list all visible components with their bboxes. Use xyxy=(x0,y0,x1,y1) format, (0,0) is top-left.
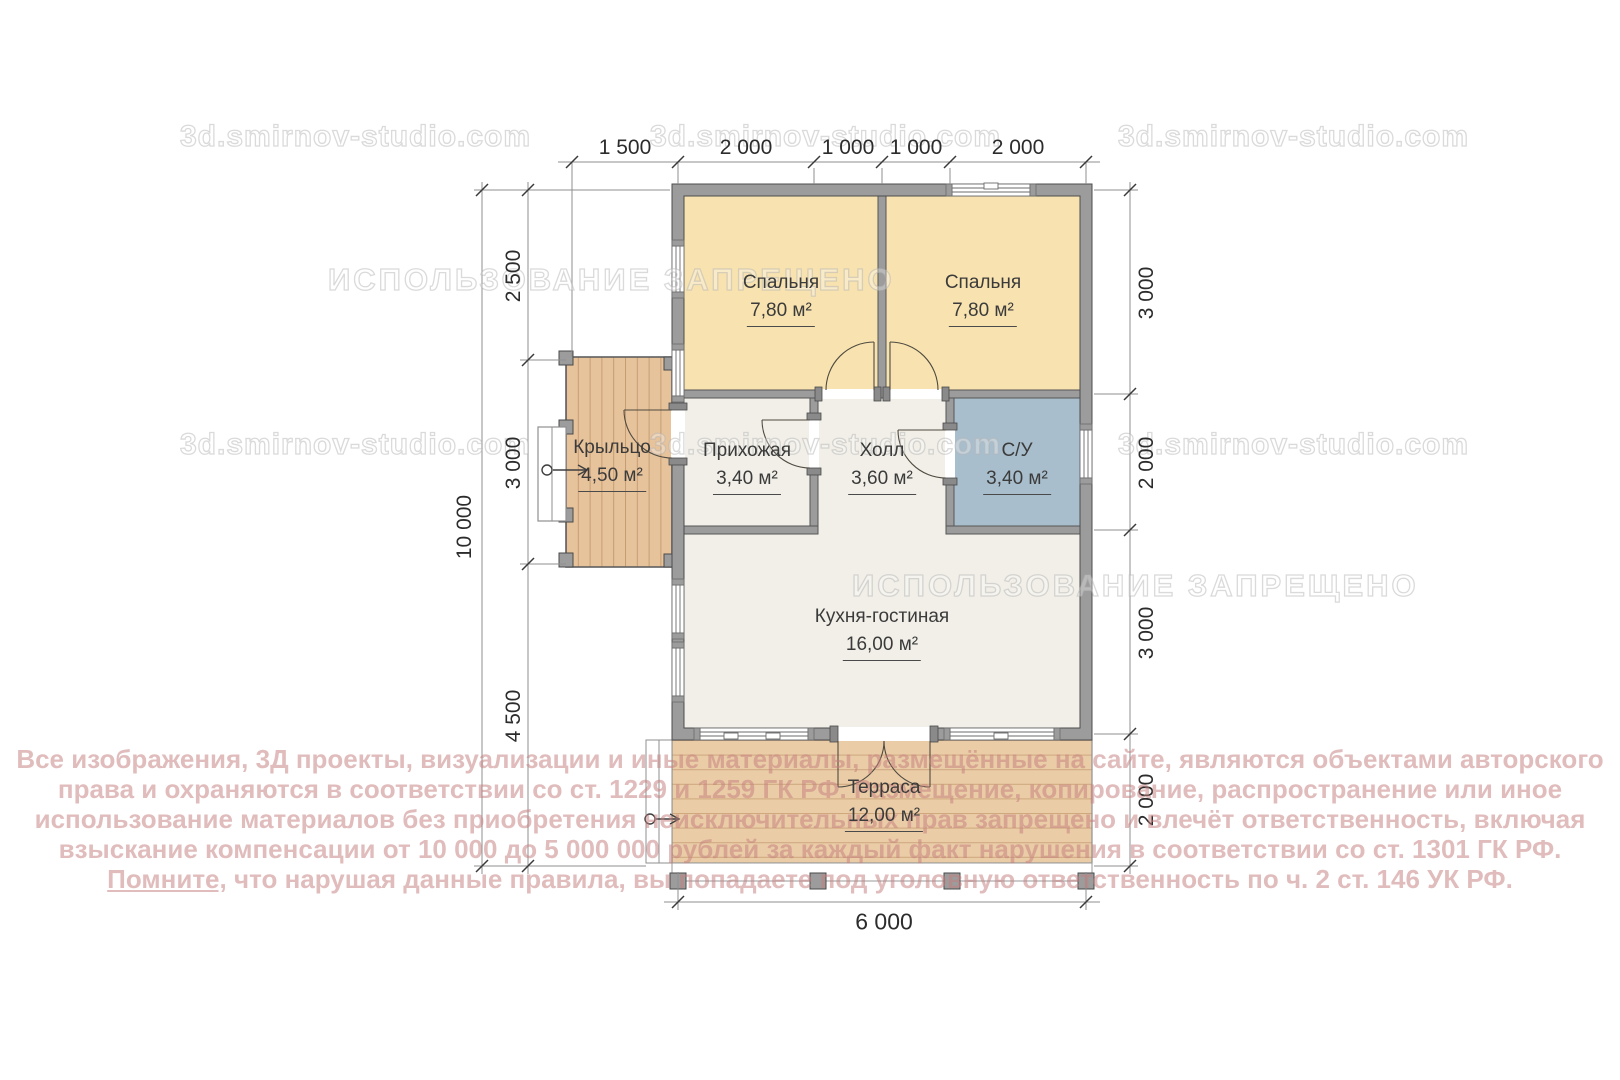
dim-right-3: 3 000 xyxy=(1135,607,1159,660)
copyright-line-rest: что нарушая данные правила, вы попадаете… xyxy=(227,864,1513,894)
hall-label: Холл 3,60 м² xyxy=(848,437,916,495)
room-area: 16,00 м² xyxy=(843,631,921,661)
dim-left-3: 4 500 xyxy=(502,690,526,743)
copyright-line: Помните, что нарушая данные правила, вы … xyxy=(10,864,1610,894)
bedroom-1-label: Спальня 7,80 м² xyxy=(743,269,819,327)
porch-entry-icon xyxy=(542,465,552,475)
floor-plan-page: 3d.smirnov-studio.com 3d.smirnov-studio.… xyxy=(0,0,1620,1080)
dim-top-4: 1 000 xyxy=(890,136,943,160)
watermark-site: 3d.smirnov-studio.com xyxy=(1118,120,1469,154)
room-area: 7,80 м² xyxy=(747,297,815,327)
room-name: Терраса xyxy=(845,774,923,802)
room-name: Спальня xyxy=(945,269,1021,297)
room-name: Крыльцо xyxy=(573,434,651,462)
hallway-label: Прихожая 3,40 м² xyxy=(703,437,791,495)
dim-left-total: 10 000 xyxy=(453,495,477,559)
watermark-site: 3d.smirnov-studio.com xyxy=(180,120,531,154)
room-area: 7,80 м² xyxy=(949,297,1017,327)
copyright-notice: Все изображения, 3Д проекты, визуализаци… xyxy=(10,744,1610,894)
room-area: 12,00 м² xyxy=(845,802,923,832)
dim-bottom: 6 000 xyxy=(855,909,913,936)
copyright-line: Все изображения, 3Д проекты, визуализаци… xyxy=(10,744,1610,774)
room-area: 3,60 м² xyxy=(848,465,916,495)
copyright-line: использование материалов без приобретени… xyxy=(10,804,1610,834)
room-name: Спальня xyxy=(743,269,819,297)
copyright-line: взыскание компенсации от 10 000 до 5 000… xyxy=(10,834,1610,864)
dim-top-2: 2 000 xyxy=(720,136,773,160)
room-area: 3,40 м² xyxy=(713,465,781,495)
bathroom-label: С/У 3,40 м² xyxy=(983,437,1051,495)
room-name: Кухня-гостиная xyxy=(815,603,949,631)
copyright-emphasis: Помните, xyxy=(107,864,227,894)
kitchen-label: Кухня-гостиная 16,00 м² xyxy=(815,603,949,661)
dim-top-1: 1 500 xyxy=(599,136,652,160)
copyright-line: права и охраняются в соответствии со ст.… xyxy=(10,774,1610,804)
room-name: С/У xyxy=(983,437,1051,465)
floor-plan-drawing xyxy=(0,0,1620,1080)
dim-left-2: 3 000 xyxy=(502,437,526,490)
dim-top-5: 2 000 xyxy=(992,136,1045,160)
watermark-site: 3d.smirnov-studio.com xyxy=(180,428,531,462)
room-area: 3,40 м² xyxy=(983,465,1051,495)
dim-right-2: 2 000 xyxy=(1135,437,1159,490)
room-name: Холл xyxy=(848,437,916,465)
watermark-ban: ИСПОЛЬЗОВАНИЕ ЗАПРЕЩЕНО xyxy=(852,568,1419,604)
terrace-label: Терраса 12,00 м² xyxy=(845,774,923,832)
dim-right-1: 3 000 xyxy=(1135,267,1159,320)
room-name: Прихожая xyxy=(703,437,791,465)
porch-label: Крыльцо 4,50 м² xyxy=(573,434,651,492)
porch-steps xyxy=(538,427,566,521)
bedroom-2-label: Спальня 7,80 м² xyxy=(945,269,1021,327)
dim-top-3: 1 000 xyxy=(822,136,875,160)
dim-left-1: 2 500 xyxy=(502,250,526,303)
watermark-site: 3d.smirnov-studio.com xyxy=(1118,428,1469,462)
room-area: 4,50 м² xyxy=(578,462,646,492)
